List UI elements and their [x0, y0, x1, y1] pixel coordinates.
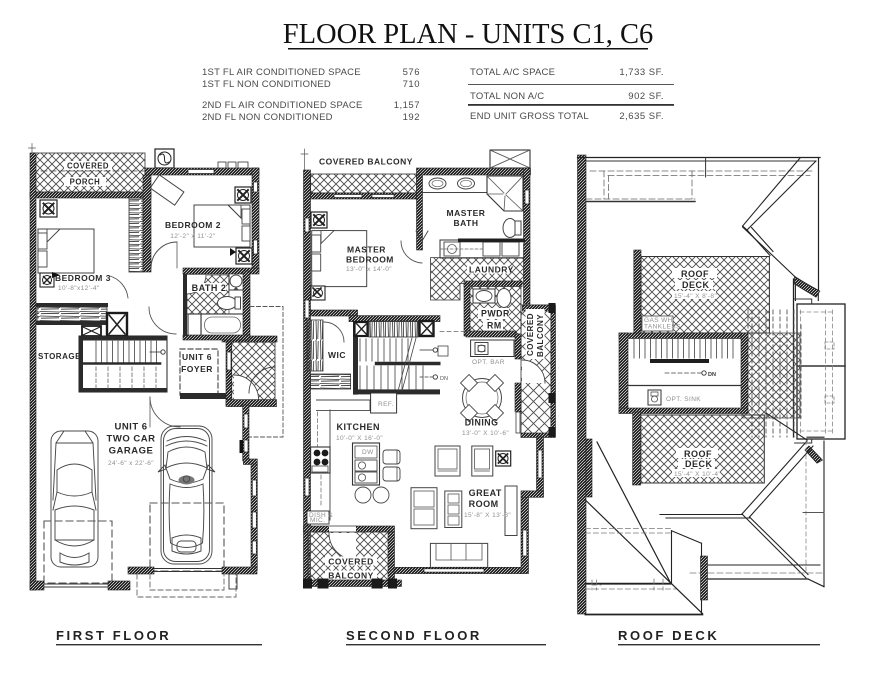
svg-text:PORCH: PORCH: [70, 178, 101, 187]
svg-text:COVERED: COVERED: [67, 162, 109, 171]
svg-text:OPT. SINK: OPT. SINK: [666, 396, 701, 403]
svg-text:2,635 SF.: 2,635 SF.: [619, 111, 664, 122]
svg-text:15'-8" X 13'-8": 15'-8" X 13'-8": [464, 512, 511, 519]
svg-text:BEDROOM 2: BEDROOM 2: [165, 220, 221, 230]
svg-text:13'-0" x 14'-0": 13'-0" x 14'-0": [346, 266, 392, 273]
svg-text:UNIT 6: UNIT 6: [182, 352, 212, 362]
svg-text:WIC: WIC: [328, 350, 346, 360]
svg-text:1,157: 1,157: [394, 100, 420, 111]
svg-text:FLOOR PLAN - UNITS C1, C6: FLOOR PLAN - UNITS C1, C6: [283, 19, 654, 50]
svg-text:TOTAL NON A/C: TOTAL NON A/C: [470, 91, 544, 102]
svg-text:OPT. BAR: OPT. BAR: [472, 359, 505, 366]
svg-text:13'-0" X 10'-6": 13'-0" X 10'-6": [462, 430, 509, 437]
svg-text:RM: RM: [487, 321, 502, 331]
svg-text:BEDROOM: BEDROOM: [346, 255, 394, 265]
svg-text:10'-8"x12'-4": 10'-8"x12'-4": [58, 285, 100, 292]
svg-text:UNIT 6: UNIT 6: [114, 422, 147, 433]
svg-text:STORAGE: STORAGE: [38, 352, 81, 361]
svg-text:710: 710: [403, 79, 420, 90]
svg-text:GREAT: GREAT: [469, 488, 502, 498]
svg-text:DN: DN: [440, 376, 448, 382]
svg-text:FIRST FLOOR: FIRST FLOOR: [56, 628, 171, 643]
svg-text:ROOF DECK: ROOF DECK: [618, 628, 719, 643]
svg-text:24'-6" x 22'-6": 24'-6" x 22'-6": [108, 460, 154, 467]
svg-text:BALCONY: BALCONY: [536, 314, 545, 357]
svg-text:MIC.: MIC.: [310, 517, 325, 524]
svg-text:1,733 SF.: 1,733 SF.: [619, 67, 664, 78]
svg-text:COVERED: COVERED: [526, 313, 535, 356]
svg-text:ROOM: ROOM: [469, 499, 499, 509]
svg-text:15'-4" X 8'-8": 15'-4" X 8'-8": [674, 293, 717, 300]
svg-text:902 SF.: 902 SF.: [628, 91, 664, 102]
svg-text:COVERED BALCONY: COVERED BALCONY: [319, 157, 413, 167]
svg-text:BATH 2: BATH 2: [192, 283, 227, 293]
svg-text:TWO CAR: TWO CAR: [107, 434, 156, 445]
svg-text:MASTER: MASTER: [447, 208, 486, 218]
svg-text:FOYER: FOYER: [181, 364, 213, 374]
svg-text:1ST FL AIR CONDITIONED SPACE: 1ST FL AIR CONDITIONED SPACE: [202, 67, 361, 78]
svg-text:END UNIT GROSS TOTAL: END UNIT GROSS TOTAL: [470, 111, 589, 122]
svg-text:TANKLESS: TANKLESS: [644, 324, 681, 331]
svg-text:PWDR: PWDR: [481, 309, 510, 319]
svg-text:BATH: BATH: [454, 218, 479, 228]
svg-text:KITCHEN: KITCHEN: [337, 422, 381, 432]
svg-text:BALCONY: BALCONY: [328, 571, 374, 581]
svg-text:576: 576: [403, 67, 420, 78]
svg-text:10'-0" X 16'-0": 10'-0" X 16'-0": [336, 435, 383, 442]
svg-text:LAUNDRY: LAUNDRY: [469, 265, 514, 275]
svg-text:MASTER: MASTER: [347, 245, 386, 255]
svg-text:DINING: DINING: [465, 418, 499, 428]
svg-text:TOTAL A/C SPACE: TOTAL A/C SPACE: [470, 67, 555, 78]
svg-text:ROOF: ROOF: [684, 449, 712, 459]
svg-text:ROOF: ROOF: [681, 269, 709, 279]
svg-text:12'-2" x 11'-2": 12'-2" x 11'-2": [170, 233, 216, 240]
svg-text:DW: DW: [362, 449, 374, 456]
svg-text:SECOND FLOOR: SECOND FLOOR: [346, 628, 482, 643]
svg-text:15'-4" X 10'-4": 15'-4" X 10'-4": [674, 471, 721, 478]
svg-text:DN: DN: [708, 372, 716, 378]
svg-text:2ND FL NON CONDITIONED: 2ND FL NON CONDITIONED: [202, 112, 333, 123]
svg-text:2ND FL AIR CONDITIONED SPACE: 2ND FL AIR CONDITIONED SPACE: [202, 100, 363, 111]
svg-text:BEDROOM 3: BEDROOM 3: [55, 273, 111, 283]
svg-text:COVERED: COVERED: [328, 557, 374, 567]
svg-text:1ST FL NON CONDITIONED: 1ST FL NON CONDITIONED: [202, 79, 331, 90]
svg-text:GARAGE: GARAGE: [109, 446, 154, 457]
svg-text:REF.: REF.: [378, 401, 394, 408]
svg-text:DECK: DECK: [685, 459, 713, 469]
svg-text:192: 192: [403, 112, 420, 123]
svg-text:DECK: DECK: [682, 280, 710, 290]
